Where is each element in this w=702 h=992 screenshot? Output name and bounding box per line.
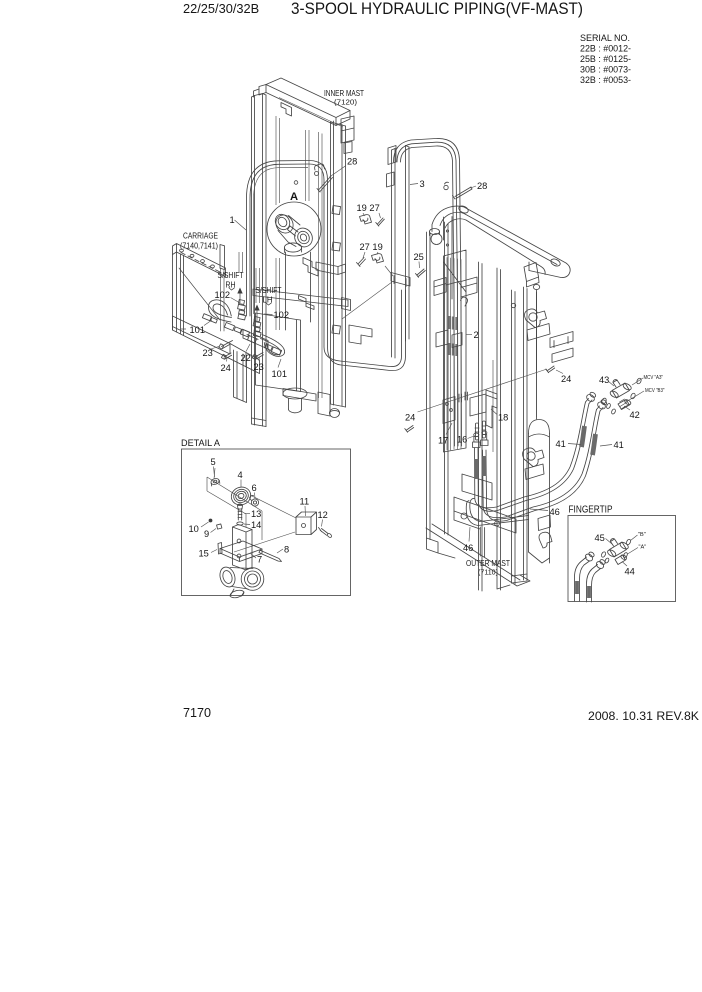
svg-text:27 19: 27 19 [360,242,383,252]
svg-text:2008. 10.31 REV.8K: 2008. 10.31 REV.8K [588,709,699,723]
svg-text:102: 102 [215,290,231,300]
svg-text:14: 14 [251,520,261,530]
svg-text:18: 18 [498,413,508,423]
svg-text:17: 17 [438,436,448,446]
svg-text:7170: 7170 [183,706,211,720]
svg-text:30B : #0073-: 30B : #0073- [580,64,631,75]
svg-text:"B": "B" [638,532,646,538]
svg-text:4: 4 [238,470,243,480]
svg-text:23: 23 [203,348,213,358]
svg-text:FINGERTIP: FINGERTIP [569,505,613,516]
svg-text:DETAIL A: DETAIL A [181,437,221,448]
svg-text:43: 43 [599,375,609,385]
svg-text:25B : #0125-: 25B : #0125- [580,53,631,64]
svg-text:15: 15 [199,549,209,559]
svg-text:22/25/30/32B: 22/25/30/32B [183,1,259,16]
svg-text:3-SPOOL HYDRAULIC PIPING(VF-MA: 3-SPOOL HYDRAULIC PIPING(VF-MAST) [291,0,583,18]
svg-text:45: 45 [595,533,605,543]
svg-text:41: 41 [556,439,566,449]
svg-text:6: 6 [252,483,257,493]
svg-text:MCV "B3": MCV "B3" [645,388,665,394]
svg-text:42: 42 [630,410,640,420]
svg-text:25: 25 [414,252,424,262]
svg-text:46: 46 [463,543,473,553]
svg-text:INNER MAST: INNER MAST [324,88,364,98]
svg-text:22B : #0012-: 22B : #0012- [580,43,631,54]
svg-text:2: 2 [474,330,479,340]
svg-text:13: 13 [251,509,261,519]
svg-text:8: 8 [284,545,289,555]
svg-text:44: 44 [625,567,635,577]
svg-text:CARRIAGE: CARRIAGE [183,231,218,241]
svg-text:(7140,7141): (7140,7141) [180,242,218,251]
svg-text:28: 28 [347,157,357,167]
svg-text:46: 46 [550,507,560,517]
svg-text:12: 12 [318,510,328,520]
svg-text:5: 5 [211,457,216,467]
svg-text:3: 3 [420,179,425,189]
svg-text:24: 24 [405,413,415,423]
svg-text:16: 16 [457,435,467,445]
svg-text:102: 102 [274,310,290,320]
svg-text:(7120): (7120) [334,98,357,107]
svg-text:SERIAL NO.: SERIAL NO. [580,32,630,43]
svg-text:11: 11 [300,497,310,507]
svg-text:10: 10 [189,524,199,534]
svg-text:101: 101 [190,325,206,335]
svg-text:7: 7 [257,555,262,565]
svg-text:S/SHIFT: S/SHIFT [218,270,244,280]
svg-text:32B : #0053-: 32B : #0053- [580,74,631,85]
svg-text:9: 9 [204,529,209,539]
svg-text:A: A [290,191,298,203]
svg-text:41: 41 [614,440,624,450]
svg-text:19 27: 19 27 [357,203,380,213]
svg-text:101: 101 [272,369,288,379]
svg-text:"A": "A" [639,545,647,551]
svg-text:28: 28 [477,181,487,191]
svg-text:MCV "A3": MCV "A3" [644,375,664,381]
svg-text:23: 23 [254,362,264,372]
svg-text:22: 22 [241,353,251,363]
svg-text:24: 24 [561,374,571,384]
svg-text:24: 24 [221,363,231,373]
svg-text:1: 1 [230,215,235,225]
